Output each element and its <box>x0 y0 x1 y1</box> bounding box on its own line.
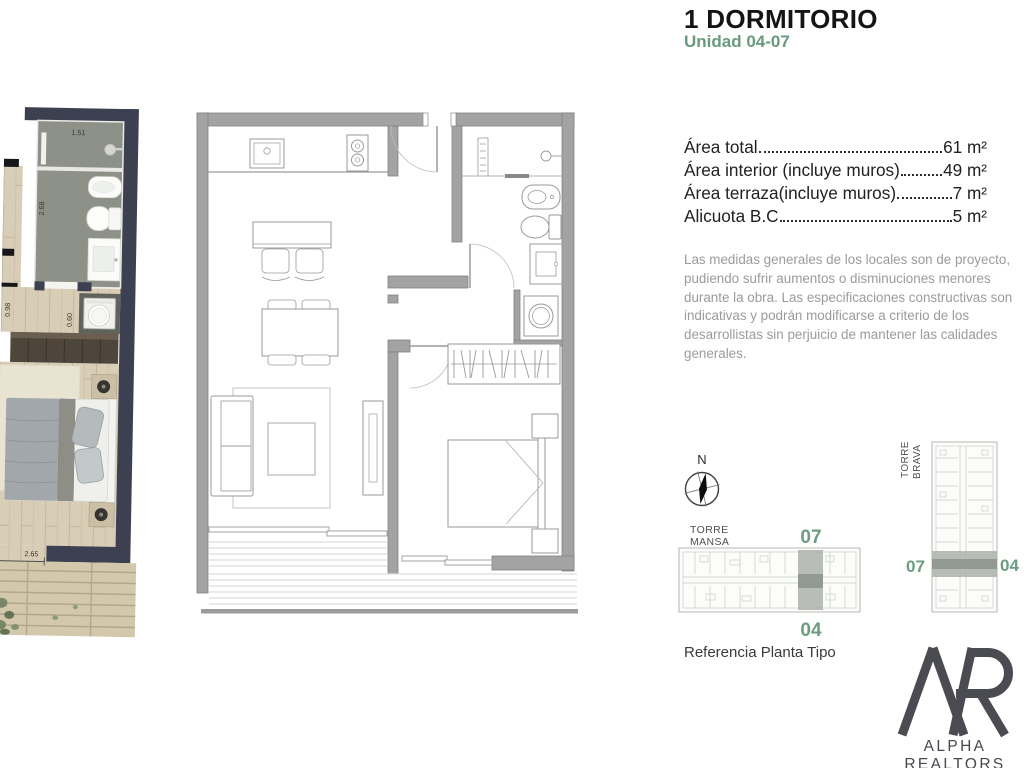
dim-bath: 2.68 <box>37 201 46 215</box>
torre-brava-keyplan: TORRE BRAVA 07 04 <box>898 428 1024 621</box>
line-floorplan-svg <box>188 104 584 626</box>
unit-07-label: 07 <box>906 557 925 576</box>
brochure-page: 1.51 2.68 0.98 0.60 2.65 <box>0 0 1024 768</box>
area-label: Alicuota B.C <box>684 207 779 226</box>
unit-07-label: 07 <box>800 527 821 548</box>
bedroom-window <box>402 556 447 561</box>
dim-shower: 1.51 <box>71 128 85 137</box>
render-laundry <box>79 293 121 334</box>
bath-vanity <box>530 244 562 284</box>
torre-mansa-name-1: TORRE <box>690 524 729 536</box>
render-floor-strip <box>0 545 47 562</box>
area-label: Área total <box>684 138 758 157</box>
area-label: Área interior (incluye muros) <box>684 161 900 180</box>
area-list: Área total 61 m² Área interior (incluye … <box>684 138 987 230</box>
page-title: 1 DORMITORIO <box>684 4 878 35</box>
plan-bathroom <box>462 138 562 284</box>
torre-mansa-building <box>679 548 860 612</box>
nightstand-bottom <box>532 529 558 553</box>
plan-living <box>211 388 383 508</box>
render-bathroom <box>34 120 123 292</box>
dot-leader <box>780 220 952 222</box>
torre-mansa-name-2: MANSA <box>690 536 729 548</box>
company-logo: ALPHA REALTORS INMOBILIARIA <box>880 645 1024 768</box>
bidet <box>522 185 560 209</box>
plan-dining <box>262 300 338 365</box>
nightstand-top <box>532 414 558 438</box>
area-row: Área interior (incluye muros) 49 m² <box>684 161 987 180</box>
logo-name: ALPHA REALTORS <box>880 738 1024 768</box>
bed <box>448 437 545 530</box>
dining-table <box>262 309 338 356</box>
compass-north-label: N <box>697 452 706 467</box>
entry-jambs <box>423 113 456 126</box>
rendered-floorplan-svg: 1.51 2.68 0.98 0.60 2.65 <box>0 85 185 644</box>
area-value: 49 m² <box>943 161 987 180</box>
dim-laundry: 0.60 <box>65 313 74 327</box>
plan-laundry <box>524 296 558 336</box>
rendered-floorplan: 1.51 2.68 0.98 0.60 2.65 <box>0 85 185 644</box>
area-row: Alicuota B.C 5 m² <box>684 207 987 226</box>
bedroom-door-arc <box>410 346 452 388</box>
area-row: Área total 61 m² <box>684 138 987 157</box>
area-label: Área terraza(incluye muros) <box>684 184 896 203</box>
dot-leader <box>901 174 942 176</box>
compass: N <box>678 446 730 517</box>
area-value: 7 m² <box>953 184 987 203</box>
toilet <box>521 215 561 239</box>
dim-hall: 0.98 <box>3 303 12 317</box>
bath-door-arc <box>470 244 514 288</box>
dim-bed: 2.65 <box>24 549 38 558</box>
logo-monogram-icon <box>890 645 1020 737</box>
torre-brava-name-1: TORRE <box>900 441 911 478</box>
terrace-edge <box>201 609 578 614</box>
sofa <box>211 396 253 496</box>
closet <box>448 344 560 384</box>
shower <box>462 138 562 178</box>
kitchen-island <box>253 222 331 281</box>
torre-mansa-keyplan: TORRE MANSA 07 04 <box>676 514 864 655</box>
dot-leader <box>759 151 942 153</box>
tv-console <box>363 401 383 495</box>
unit-04-label: 04 <box>1000 556 1019 575</box>
render-terrace <box>0 561 136 638</box>
line-floorplan <box>188 104 584 626</box>
page-subtitle: Unidad 04-07 <box>684 32 790 52</box>
plan-bedroom <box>448 344 560 553</box>
disclaimer-text: Las medidas generales de los locales son… <box>684 251 1018 364</box>
living-slider <box>209 527 329 532</box>
area-value: 5 m² <box>953 207 987 226</box>
plan-kitchen <box>208 135 388 281</box>
render-edge-strip <box>1 159 23 290</box>
plan-glazing <box>209 527 492 565</box>
kitchen-stove <box>347 135 368 171</box>
area-row: Área terraza(incluye muros) 7 m² <box>684 184 987 203</box>
unit-04-label: 04 <box>800 620 822 641</box>
area-value: 61 m² <box>943 138 987 157</box>
torre-brava-name-2: BRAVA <box>912 445 923 479</box>
coffee-table <box>268 423 315 475</box>
reference-caption: Referencia Planta Tipo <box>684 644 836 661</box>
dot-leader <box>897 197 952 199</box>
render-wardrobe <box>10 332 119 364</box>
torre-brava-building <box>932 442 997 612</box>
